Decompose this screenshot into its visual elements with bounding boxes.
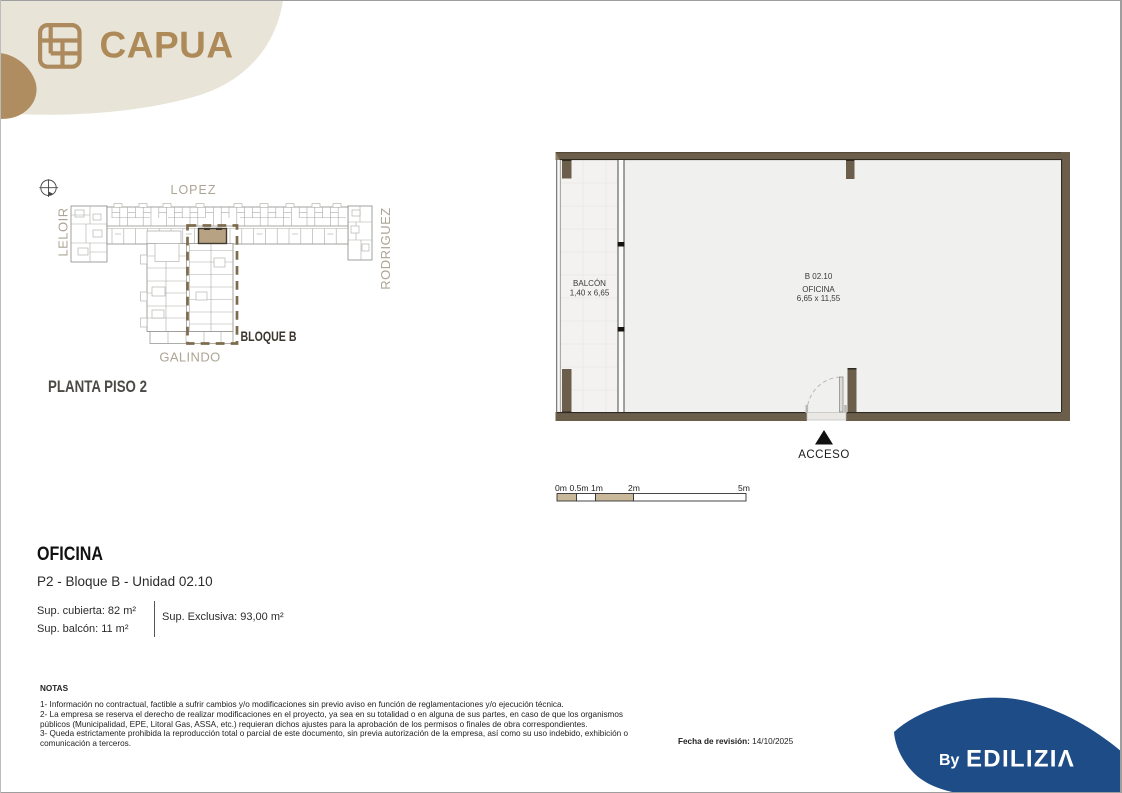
svg-text:LELOIR: LELOIR — [56, 207, 71, 256]
svg-text:RODRIGUEZ: RODRIGUEZ — [378, 207, 393, 290]
svg-text:B 02.10: B 02.10 — [805, 272, 833, 281]
svg-text:ACCESO: ACCESO — [798, 449, 850, 461]
svg-text:1,40 x 6,65: 1,40 x 6,65 — [570, 288, 610, 297]
svg-text:1m: 1m — [591, 483, 603, 493]
svg-text:5m: 5m — [738, 483, 750, 493]
svg-text:GALINDO: GALINDO — [159, 350, 220, 365]
svg-text:0.5m: 0.5m — [569, 483, 588, 493]
svg-text:CAPUA: CAPUA — [100, 25, 234, 66]
svg-text:OFICINA: OFICINA — [802, 285, 835, 294]
svg-text:BALCÓN: BALCÓN — [573, 279, 606, 288]
svg-text:PLANTA PISO 2: PLANTA PISO 2 — [48, 378, 147, 396]
svg-text:0m: 0m — [555, 483, 567, 493]
svg-text:BLOQUE B: BLOQUE B — [241, 329, 297, 344]
svg-text:By: By — [939, 752, 960, 769]
svg-text:6,65 x 11,55: 6,65 x 11,55 — [797, 294, 841, 303]
svg-text:2m: 2m — [628, 483, 640, 493]
svg-text:EDILIZIΛ: EDILIZIΛ — [966, 746, 1075, 773]
svg-text:LOPEZ: LOPEZ — [171, 183, 217, 197]
